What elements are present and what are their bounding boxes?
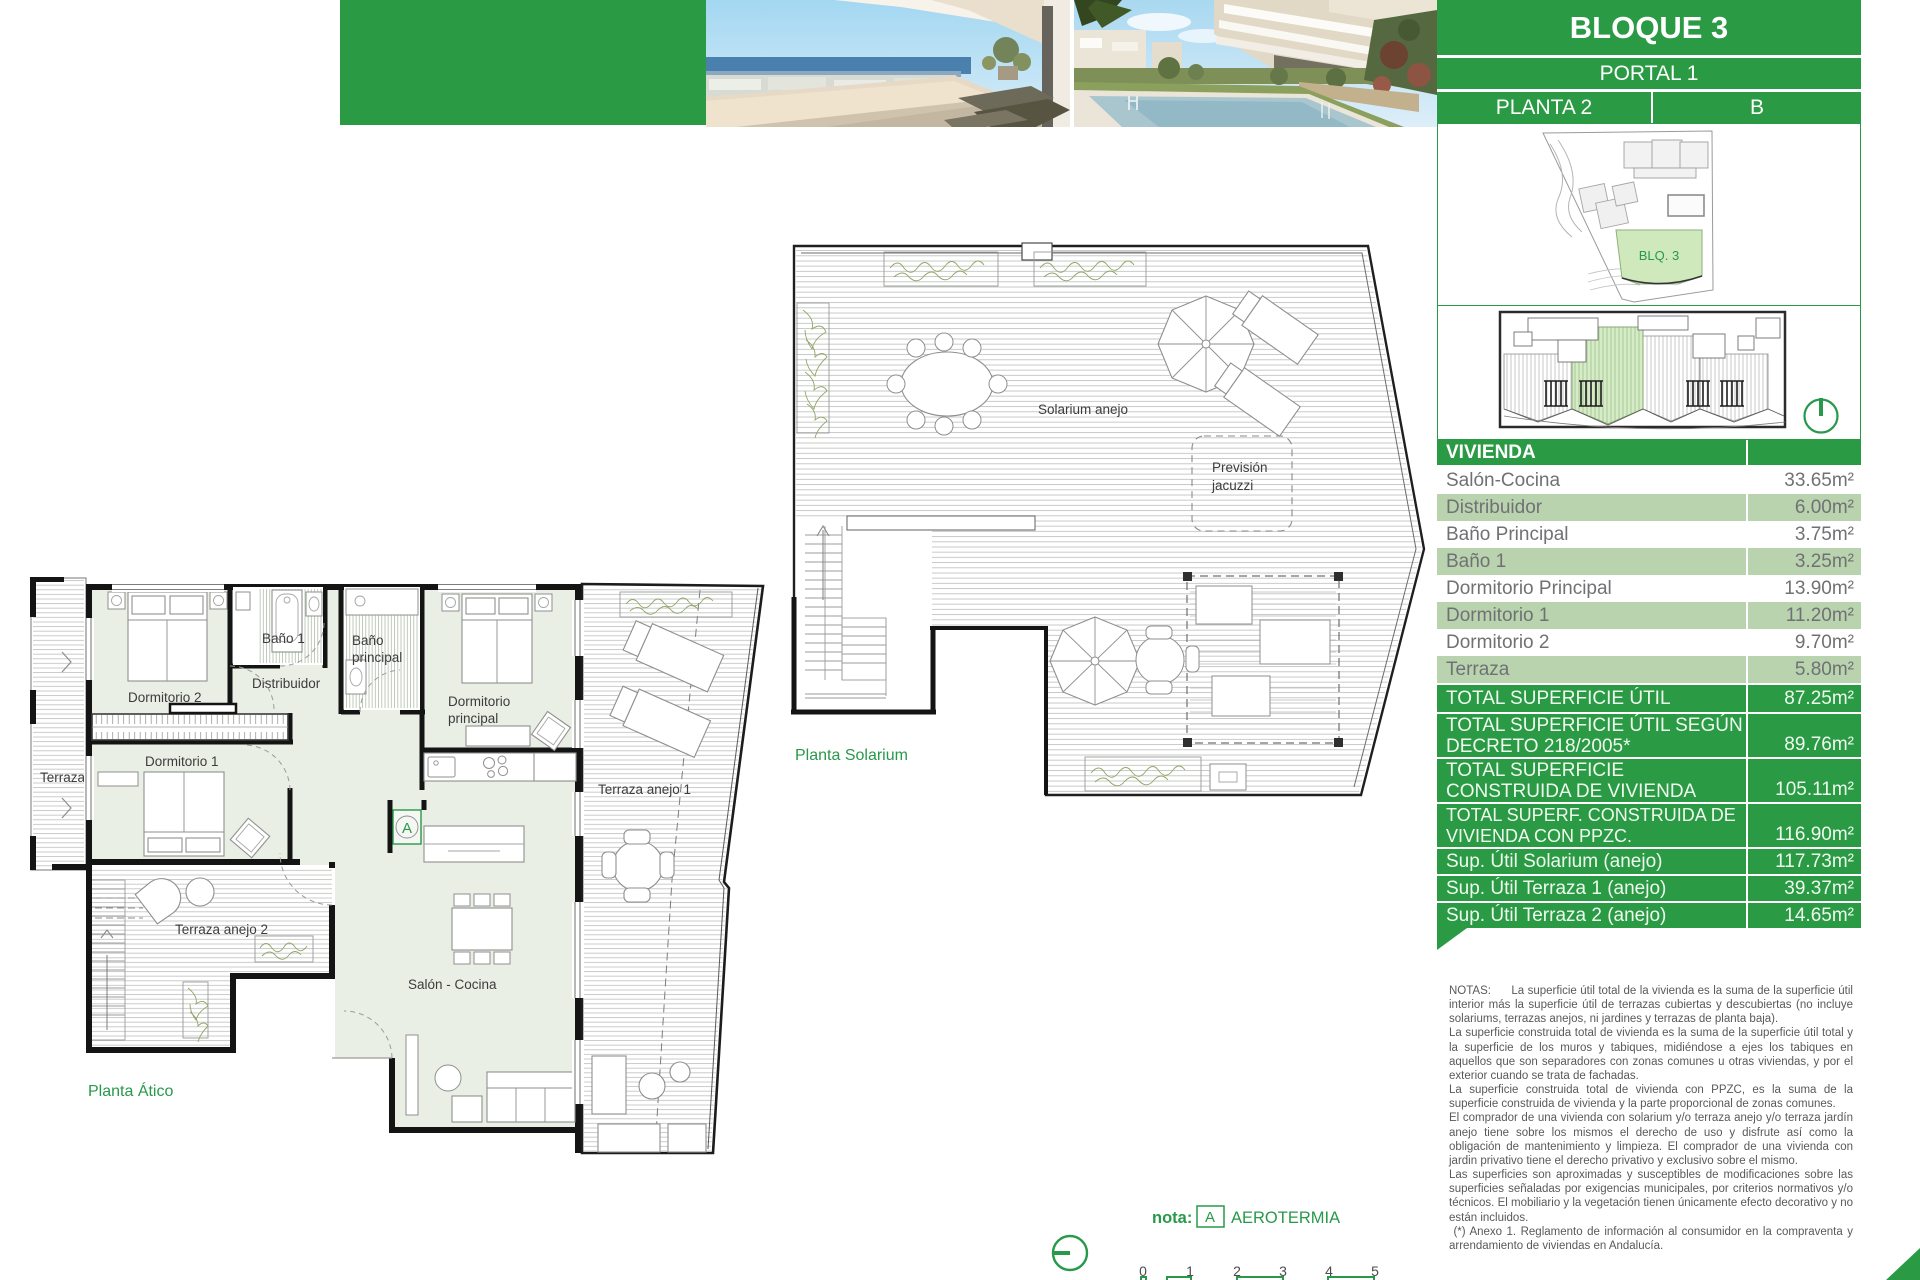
- svg-text:Planta Ático: Planta Ático: [88, 1081, 173, 1100]
- svg-text:principal: principal: [352, 650, 402, 665]
- svg-text:Solarium anejo: Solarium anejo: [1038, 402, 1128, 417]
- svg-text:Dormitorio: Dormitorio: [448, 694, 510, 709]
- svg-text:Distribuidor: Distribuidor: [252, 676, 321, 691]
- svg-text:Previsión: Previsión: [1212, 460, 1268, 475]
- svg-text:nota:: nota:: [1152, 1209, 1192, 1227]
- svg-text:A: A: [402, 820, 412, 837]
- svg-text:jacuzzi: jacuzzi: [1211, 478, 1253, 493]
- svg-text:Dormitorio 2: Dormitorio 2: [128, 690, 202, 705]
- svg-text:Terraza anejo 1: Terraza anejo 1: [598, 782, 691, 797]
- svg-text:principal: principal: [448, 711, 498, 726]
- svg-text:Terraza: Terraza: [40, 770, 86, 785]
- svg-text:AEROTERMIA: AEROTERMIA: [1231, 1209, 1340, 1227]
- svg-text:BLQ. 3: BLQ. 3: [1639, 248, 1679, 263]
- svg-text:Dormitorio 1: Dormitorio 1: [145, 754, 219, 769]
- svg-text:Baño: Baño: [352, 633, 384, 648]
- svg-text:Terraza anejo 2: Terraza anejo 2: [175, 922, 268, 937]
- svg-text:Baño 1: Baño 1: [262, 631, 305, 646]
- svg-text:A: A: [1205, 1209, 1215, 1226]
- svg-text:Planta Solarium: Planta Solarium: [795, 747, 908, 764]
- svg-text:Salón - Cocina: Salón - Cocina: [408, 977, 497, 992]
